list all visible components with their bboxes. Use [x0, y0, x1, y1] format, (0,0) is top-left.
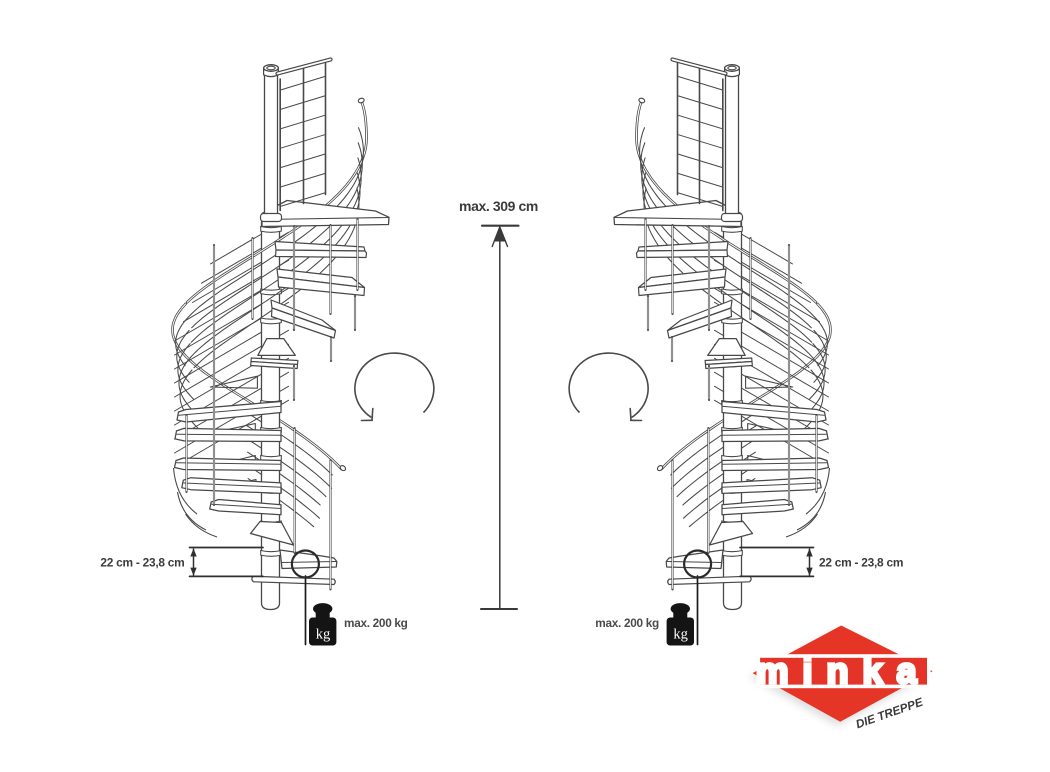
svg-text:max. 200 kg: max. 200 kg: [344, 616, 408, 630]
svg-text:22 cm - 23,8 cm: 22 cm - 23,8 cm: [100, 556, 184, 570]
svg-text:kg: kg: [316, 627, 331, 643]
svg-text:max. 309 cm: max. 309 cm: [459, 198, 538, 214]
svg-text:22 cm - 23,8 cm: 22 cm - 23,8 cm: [819, 556, 903, 570]
svg-text:minka: minka: [756, 650, 930, 691]
svg-text:kg: kg: [673, 627, 688, 643]
svg-text:max. 200 kg: max. 200 kg: [595, 616, 659, 630]
